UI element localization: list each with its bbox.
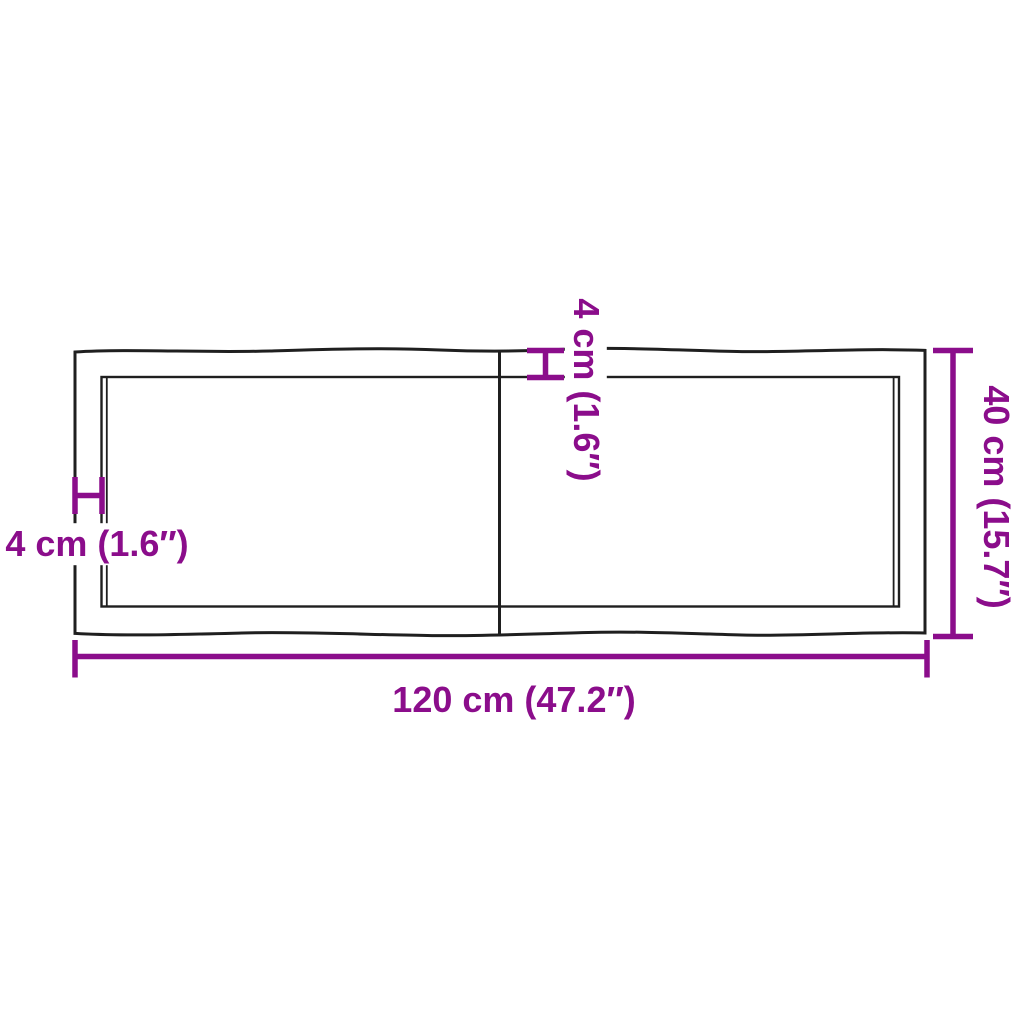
width-dimension-line [75,640,927,678]
left-thickness-label: 4 cm (1.6″) [1,523,192,565]
height-dimension-line [933,351,973,637]
width-dimension-label: 120 cm (47.2″) [392,680,635,720]
top-thickness-label: 4 cm (1.6″) [565,294,607,485]
left-thickness-marker [75,477,102,514]
height-dimension-label: 40 cm (15.7″) [976,385,1016,608]
product-dimension-diagram: 120 cm (47.2″) 40 cm (15.7″) 4 cm (1.6″)… [0,0,1024,1024]
top-thickness-marker [527,351,564,378]
diagram-canvas [0,0,1024,1024]
